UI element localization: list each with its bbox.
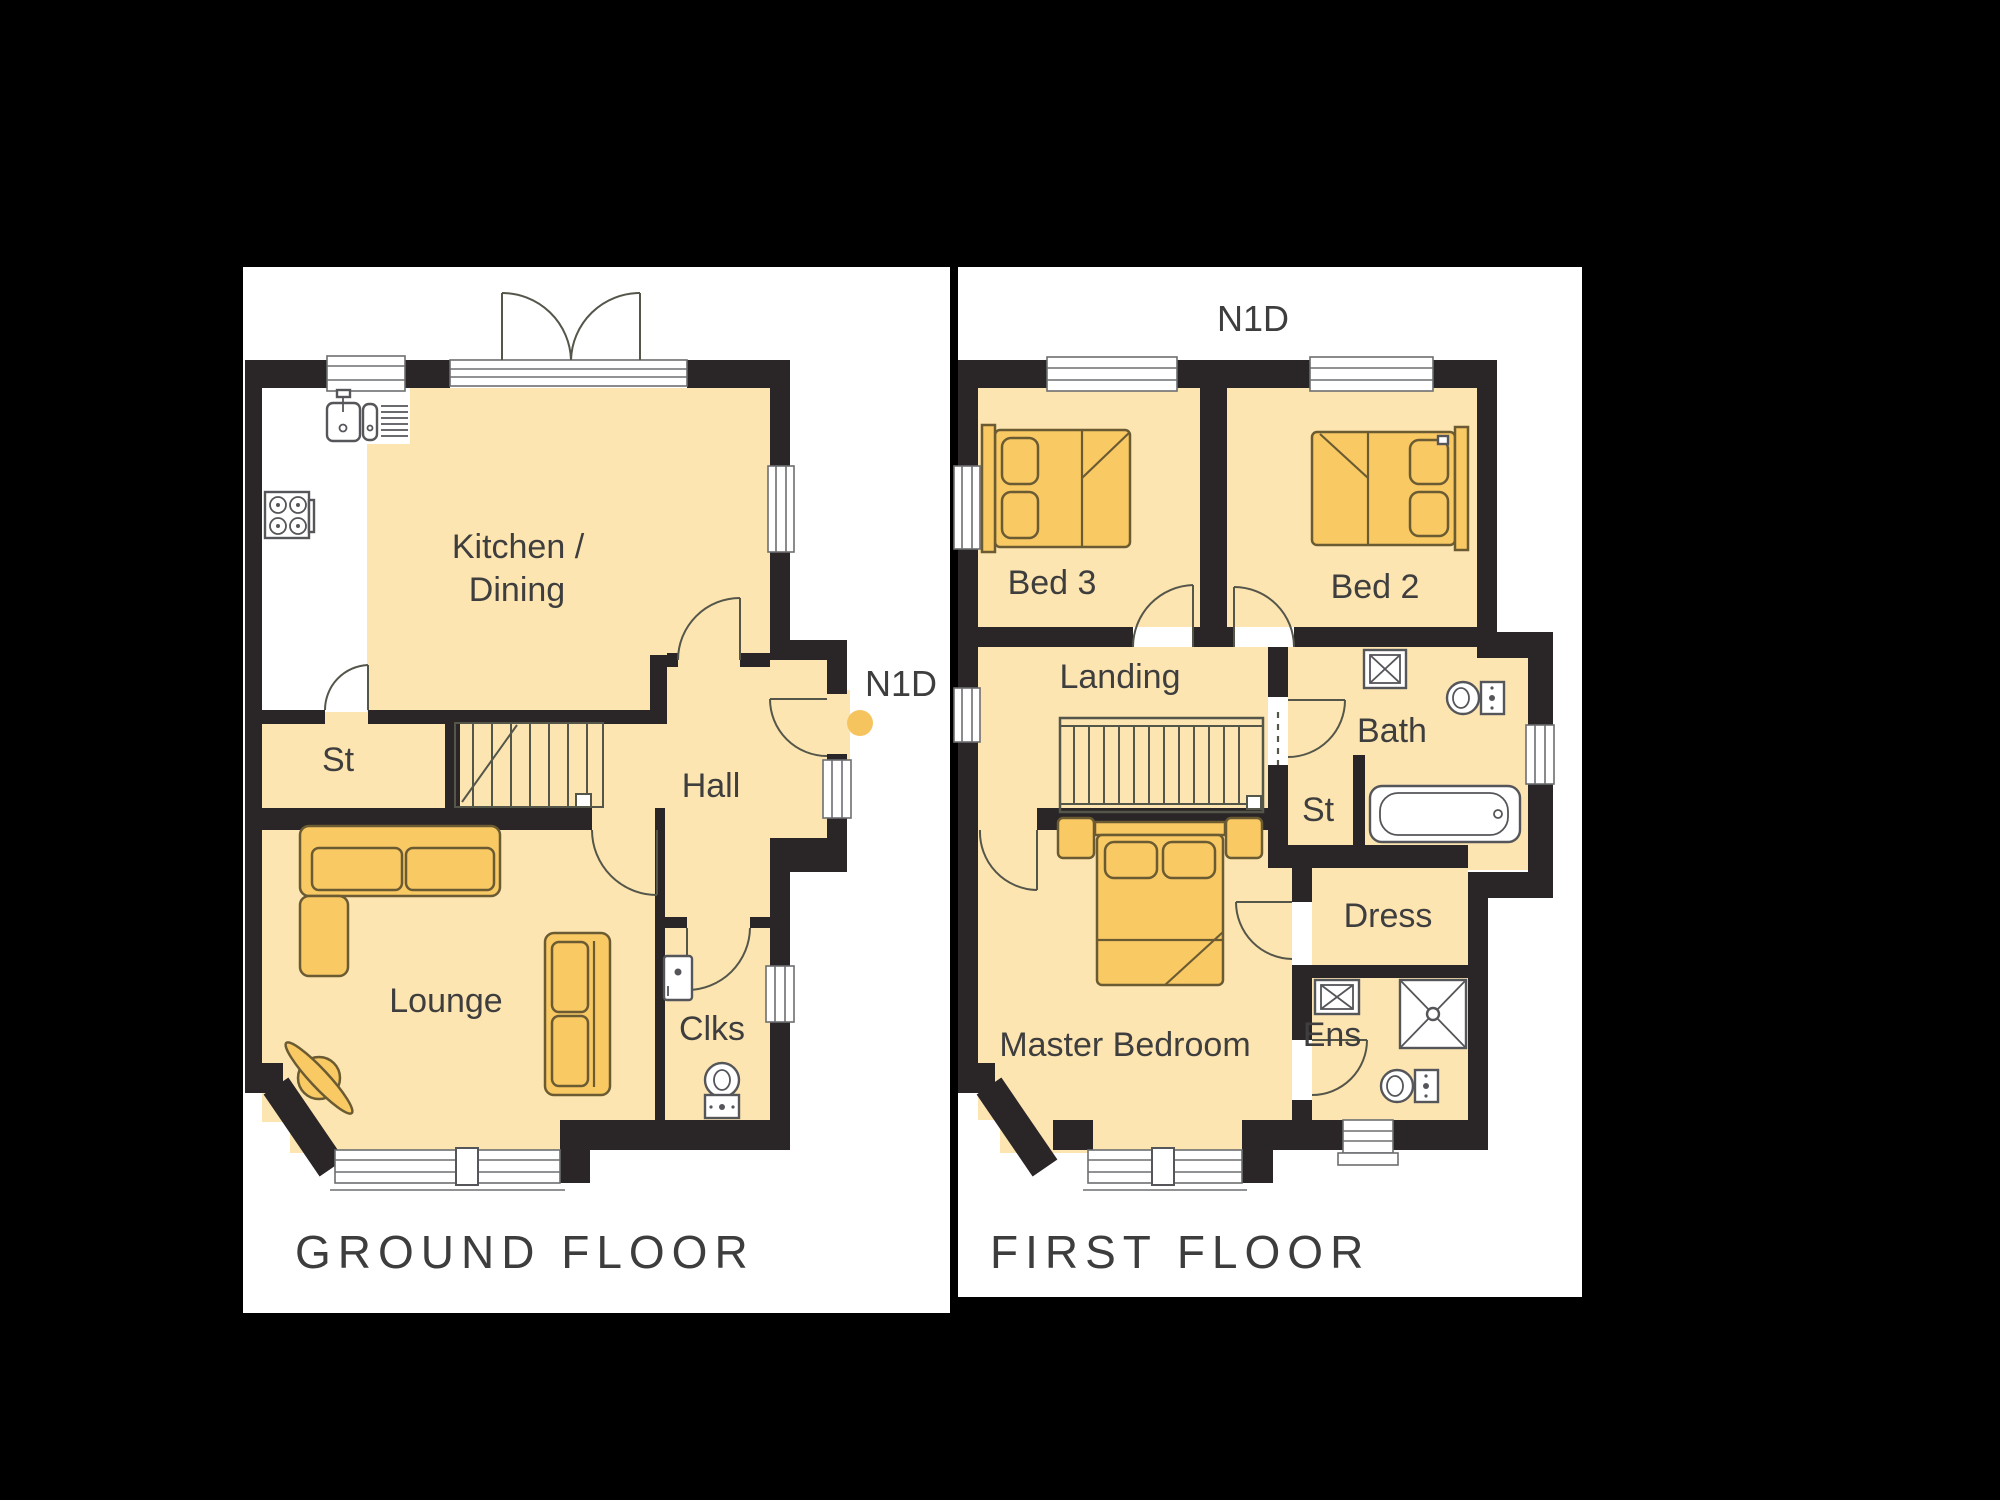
bath-side-window: [1526, 725, 1554, 784]
cloakroom-label: Clks: [679, 1010, 745, 1048]
bath-wall-unit-icon: [1364, 650, 1406, 688]
ground-floor-plan: Kitchen / Dining St Hall Lounge Clks N1D…: [243, 267, 950, 1313]
bed3-label: Bed 3: [1008, 564, 1097, 602]
floorplan-canvas: Kitchen / Dining St Hall Lounge Clks N1D…: [0, 0, 2000, 1500]
floorplan-svg: Kitchen / Dining St Hall Lounge Clks N1D…: [0, 0, 2000, 1500]
kitchen-side-window: [768, 466, 794, 552]
lounge-bay-window: [330, 1148, 565, 1190]
bed2-bed-icon: [1312, 427, 1468, 550]
landing-side-window: [954, 688, 980, 742]
kitchen-dining-label-line1: Kitchen /: [452, 528, 585, 566]
shower-icon: [1400, 980, 1466, 1048]
store-ff-label: St: [1302, 791, 1335, 829]
toilet-icon: [705, 1063, 739, 1118]
first-floor-caption: FIRST FLOOR: [990, 1226, 1370, 1278]
basin-icon: [664, 956, 692, 1000]
hall-label: Hall: [682, 767, 741, 805]
bed3-bed-icon: [982, 425, 1130, 552]
bathtub-icon: [1370, 786, 1520, 842]
hob-icon: [265, 492, 314, 538]
bed3-side-window: [954, 466, 980, 549]
dress-label: Dress: [1344, 897, 1433, 935]
french-door-sill: [450, 360, 687, 386]
first-floor-plot-marker-label: N1D: [1217, 298, 1289, 339]
ensuite-label: Ens: [1303, 1016, 1362, 1054]
kitchen-dining-label-line2: Dining: [469, 571, 565, 609]
ensuite-toilet-icon: [1381, 1070, 1438, 1102]
master-bedroom-label: Master Bedroom: [999, 1026, 1250, 1064]
master-bay-window: [1083, 1148, 1247, 1190]
cloakroom-window: [766, 966, 794, 1022]
bed2-label: Bed 2: [1331, 568, 1420, 606]
ensuite-window: [1338, 1120, 1398, 1165]
landing-label: Landing: [1059, 658, 1180, 696]
bed2-top-window: [1310, 357, 1433, 391]
ensuite-wall-unit-icon: [1315, 980, 1359, 1014]
ground-floor-plot-marker-label: N1D: [865, 663, 937, 704]
hall-side-window: [823, 760, 851, 818]
bath-label: Bath: [1357, 712, 1427, 750]
store-label: St: [322, 741, 355, 779]
plot-marker-dot: [847, 710, 873, 736]
bed3-top-window: [1047, 357, 1177, 391]
lounge-label: Lounge: [389, 982, 502, 1020]
kitchen-top-window: [327, 356, 405, 391]
ground-floor-caption: GROUND FLOOR: [295, 1226, 755, 1278]
bath-toilet-icon: [1447, 682, 1504, 714]
small-sofa-icon: [545, 933, 610, 1095]
first-floor-plan: Bed 3 Bed 2 Landing Bath St Dress Master…: [954, 267, 1582, 1297]
